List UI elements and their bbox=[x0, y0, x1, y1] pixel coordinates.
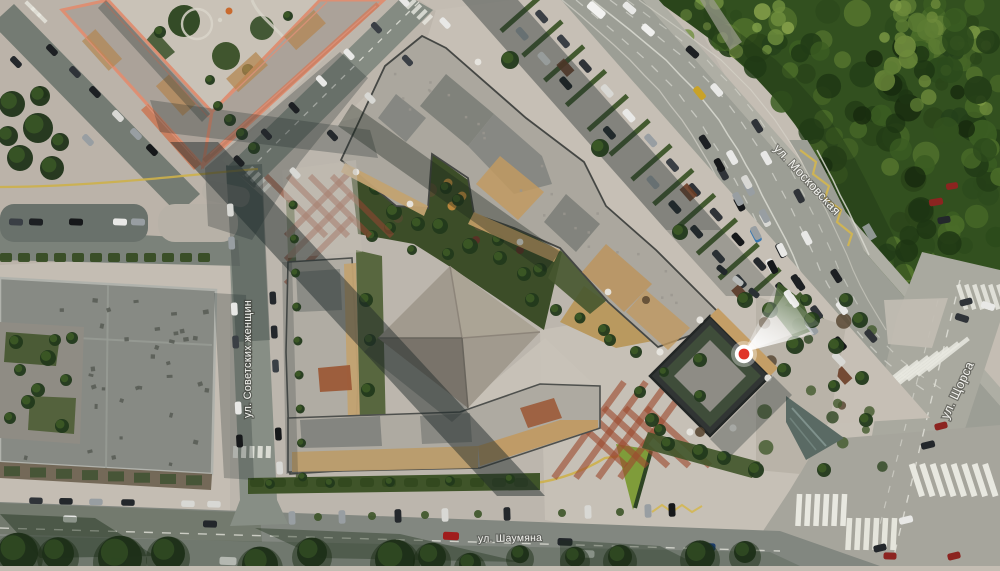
svg-text:ул. Шаумяна: ул. Шаумяна bbox=[478, 532, 542, 545]
svg-text:ул. Советских женщин: ул. Советских женщин bbox=[242, 300, 254, 418]
